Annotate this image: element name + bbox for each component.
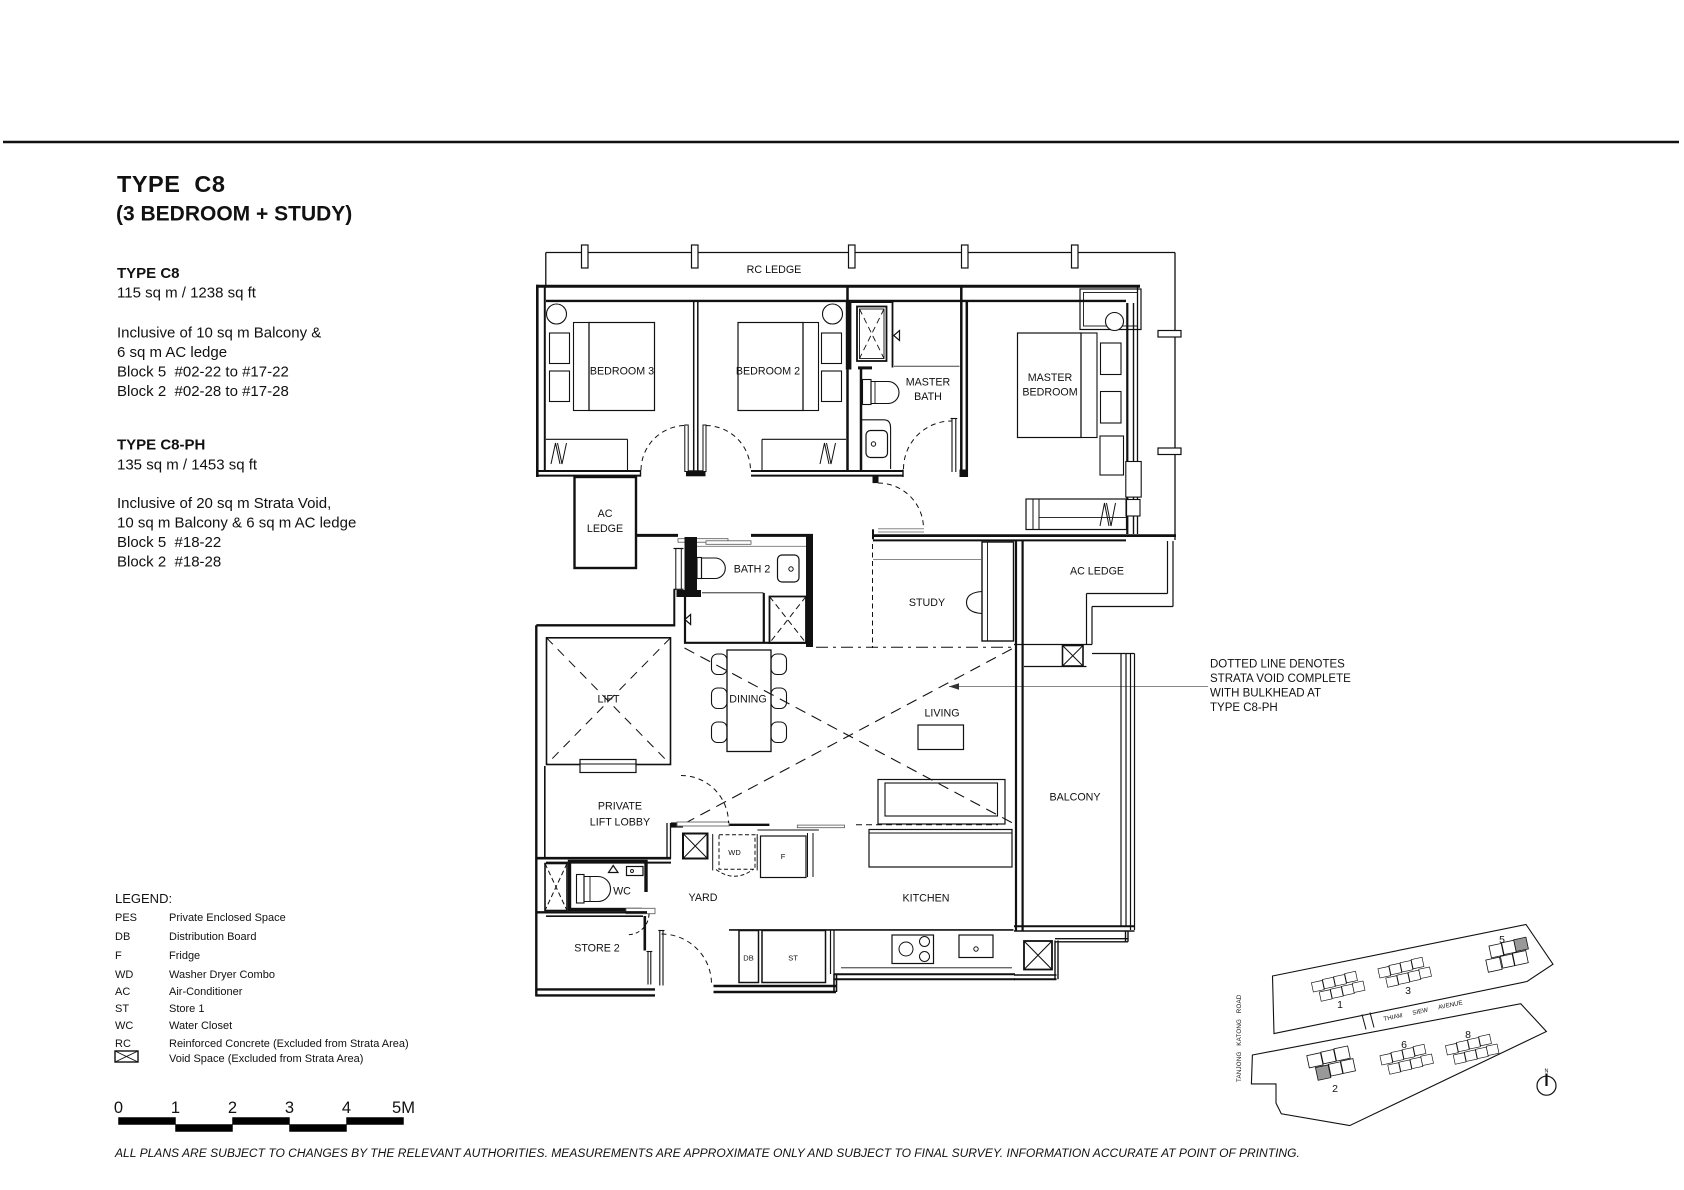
svg-text:(3 BEDROOM + STUDY): (3 BEDROOM + STUDY) bbox=[116, 203, 352, 226]
svg-text:N: N bbox=[1545, 1069, 1549, 1075]
svg-text:0: 0 bbox=[114, 1099, 123, 1117]
svg-text:135 sq m / 1453 sq ft: 135 sq m / 1453 sq ft bbox=[117, 457, 258, 474]
svg-text:Block 2 #18-28: Block 2 #18-28 bbox=[117, 554, 221, 571]
svg-text:TYPE C8-PH: TYPE C8-PH bbox=[1210, 702, 1278, 714]
svg-text:RC LEDGE: RC LEDGE bbox=[747, 264, 802, 276]
svg-text:LIVING: LIVING bbox=[924, 708, 959, 720]
svg-text:LIFT LOBBY: LIFT LOBBY bbox=[590, 817, 650, 829]
svg-text:8: 8 bbox=[1465, 1029, 1471, 1041]
svg-text:AC: AC bbox=[598, 508, 613, 520]
svg-text:Block 5 #18-22: Block 5 #18-22 bbox=[117, 534, 221, 551]
svg-text:DB: DB bbox=[115, 931, 130, 943]
svg-text:Reinforced Concrete (Excluded: Reinforced Concrete (Excluded from Strat… bbox=[169, 1038, 409, 1050]
svg-text:BEDROOM 2: BEDROOM 2 bbox=[736, 366, 800, 378]
svg-text:1: 1 bbox=[171, 1099, 180, 1117]
svg-text:2: 2 bbox=[1332, 1083, 1338, 1095]
svg-text:Air-Conditioner: Air-Conditioner bbox=[169, 986, 243, 998]
svg-text:Private Enclosed Space: Private Enclosed Space bbox=[169, 912, 286, 924]
svg-text:Distribution Board: Distribution Board bbox=[169, 931, 256, 943]
svg-text:WD: WD bbox=[115, 969, 133, 981]
svg-text:Inclusive of 20 sq m Strata Vo: Inclusive of 20 sq m Strata Void, bbox=[117, 495, 331, 512]
svg-text:6 sq m AC ledge: 6 sq m AC ledge bbox=[117, 344, 227, 361]
svg-text:2: 2 bbox=[228, 1099, 237, 1117]
svg-text:WC: WC bbox=[613, 886, 631, 898]
svg-text:TANJONG KATONG ROAD: TANJONG KATONG ROAD bbox=[1236, 994, 1243, 1082]
svg-text:BEDROOM 3: BEDROOM 3 bbox=[590, 366, 654, 378]
svg-text:1: 1 bbox=[1337, 999, 1343, 1011]
svg-text:Store 1: Store 1 bbox=[169, 1003, 204, 1015]
svg-text:Inclusive of 10 sq m Balcony &: Inclusive of 10 sq m Balcony & bbox=[117, 325, 321, 342]
svg-text:BATH: BATH bbox=[914, 391, 942, 403]
svg-text:TYPE C8: TYPE C8 bbox=[117, 265, 180, 282]
svg-text:STORE 2: STORE 2 bbox=[574, 943, 620, 955]
svg-text:3: 3 bbox=[285, 1099, 294, 1117]
svg-text:DB: DB bbox=[743, 954, 753, 963]
svg-text:DINING: DINING bbox=[729, 694, 766, 706]
svg-text:10 sq m Balcony & 6 sq m AC le: 10 sq m Balcony & 6 sq m AC ledge bbox=[117, 515, 356, 532]
svg-text:F: F bbox=[781, 852, 786, 861]
svg-text:AC LEDGE: AC LEDGE bbox=[1070, 566, 1124, 578]
svg-text:4: 4 bbox=[342, 1099, 351, 1117]
svg-text:6: 6 bbox=[1401, 1039, 1407, 1051]
svg-text:115 sq m / 1238 sq ft: 115 sq m / 1238 sq ft bbox=[117, 285, 257, 302]
svg-text:RC: RC bbox=[115, 1038, 131, 1050]
svg-text:WD: WD bbox=[728, 848, 741, 857]
svg-text:STUDY: STUDY bbox=[909, 597, 945, 609]
svg-text:MASTER: MASTER bbox=[906, 377, 951, 389]
svg-text:LEGEND:: LEGEND: bbox=[115, 891, 172, 906]
svg-text:ST: ST bbox=[115, 1003, 129, 1015]
svg-text:F: F bbox=[115, 950, 122, 962]
svg-text:5M: 5M bbox=[392, 1099, 415, 1117]
svg-text:Block 5 #02-22 to #17-22: Block 5 #02-22 to #17-22 bbox=[117, 364, 289, 381]
svg-text:PRIVATE: PRIVATE bbox=[598, 801, 642, 813]
svg-text:Fridge: Fridge bbox=[169, 950, 200, 962]
svg-text:BATH 2: BATH 2 bbox=[734, 564, 771, 576]
svg-text:MASTER: MASTER bbox=[1028, 372, 1073, 384]
svg-text:5: 5 bbox=[1499, 934, 1505, 946]
svg-text:PES: PES bbox=[115, 912, 137, 924]
svg-text:AC: AC bbox=[115, 986, 130, 998]
svg-text:Void Space (Excluded from Stra: Void Space (Excluded from Strata Area) bbox=[169, 1053, 363, 1065]
svg-text:Block 2 #02-28 to #17-28: Block 2 #02-28 to #17-28 bbox=[117, 383, 289, 400]
svg-text:LIFT: LIFT bbox=[598, 694, 620, 706]
svg-text:STRATA VOID COMPLETE: STRATA VOID COMPLETE bbox=[1210, 673, 1351, 685]
svg-text:3: 3 bbox=[1405, 985, 1411, 997]
svg-text:LEDGE: LEDGE bbox=[587, 523, 623, 535]
svg-text:TYPE C8: TYPE C8 bbox=[117, 171, 225, 197]
svg-text:KITCHEN: KITCHEN bbox=[903, 893, 950, 905]
svg-text:ST: ST bbox=[788, 954, 798, 963]
svg-text:DOTTED LINE DENOTES: DOTTED LINE DENOTES bbox=[1210, 659, 1345, 671]
svg-text:YARD: YARD bbox=[689, 892, 718, 904]
svg-text:ALL PLANS ARE SUBJECT TO CHANG: ALL PLANS ARE SUBJECT TO CHANGES BY THE … bbox=[114, 1146, 1300, 1160]
svg-text:BALCONY: BALCONY bbox=[1049, 792, 1100, 804]
svg-text:WC: WC bbox=[115, 1020, 133, 1032]
svg-text:Washer Dryer Combo: Washer Dryer Combo bbox=[169, 969, 275, 981]
svg-text:WITH BULKHEAD AT: WITH BULKHEAD AT bbox=[1210, 688, 1321, 700]
svg-text:TYPE C8-PH: TYPE C8-PH bbox=[117, 437, 205, 454]
svg-text:BEDROOM: BEDROOM bbox=[1022, 387, 1077, 399]
svg-text:Water Closet: Water Closet bbox=[169, 1020, 232, 1032]
